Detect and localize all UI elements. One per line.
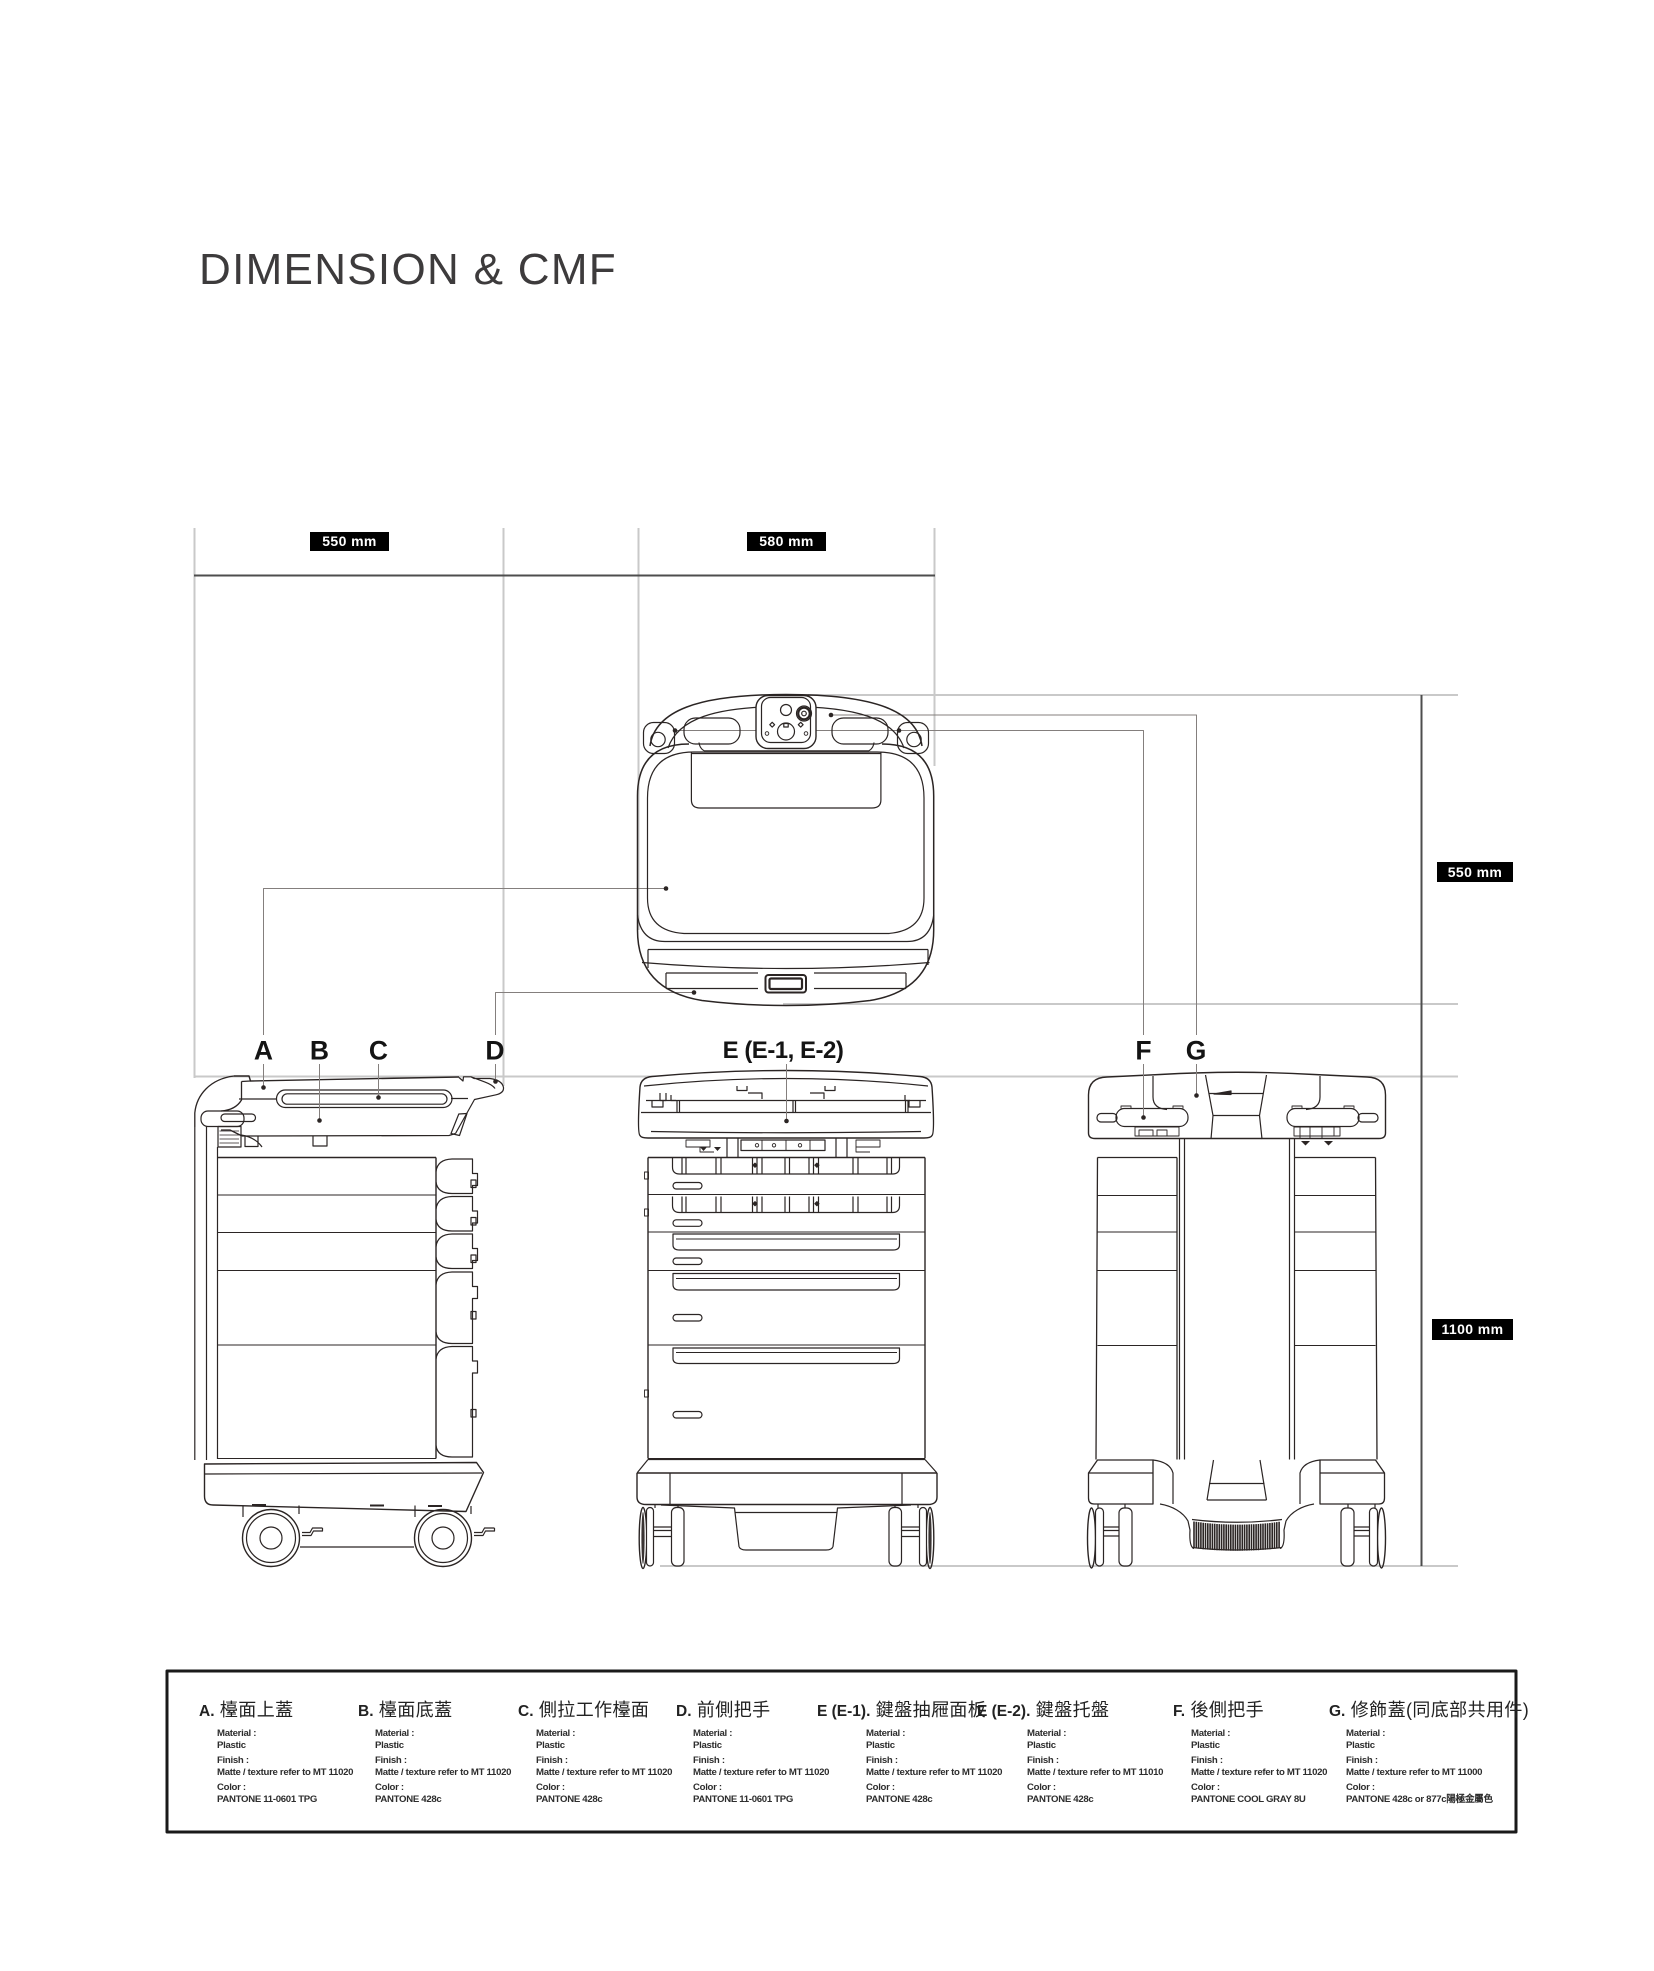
svg-text:G: G — [1186, 1036, 1207, 1066]
svg-text:B: B — [310, 1036, 329, 1066]
svg-text:D: D — [485, 1036, 504, 1066]
svg-text:A: A — [254, 1036, 273, 1066]
svg-text:F: F — [1135, 1036, 1151, 1066]
svg-text:E (E-1, E-2): E (E-1, E-2) — [723, 1037, 844, 1064]
svg-text:C: C — [369, 1036, 388, 1066]
